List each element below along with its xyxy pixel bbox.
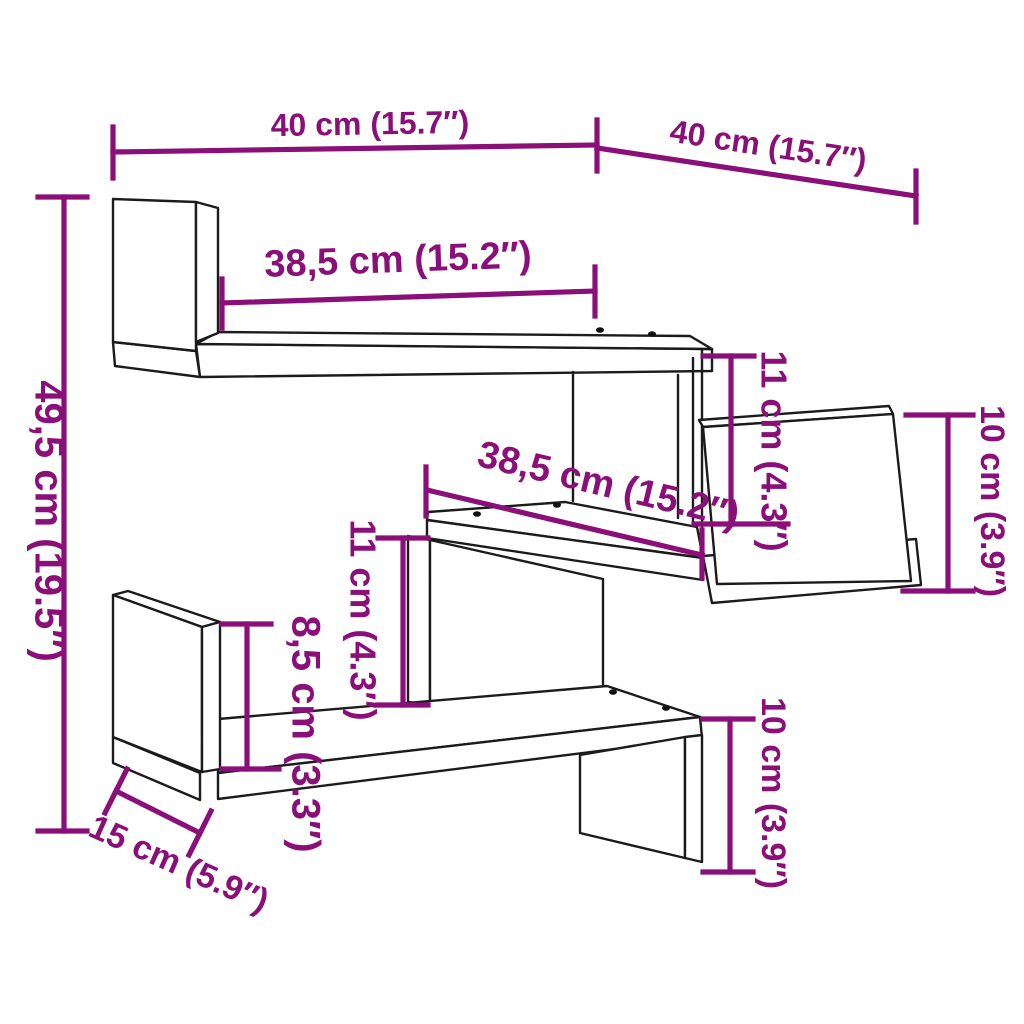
dimension-label: 10 cm (3.9″) xyxy=(754,697,792,889)
dimension-label: 8,5 cm (3.3″) xyxy=(283,615,327,852)
dimension-width-left: 40 cm (15.7″) xyxy=(113,104,597,178)
dimension-label: 11 cm (4.3″) xyxy=(342,519,383,720)
corner-shelf-dimension-diagram: 40 cm (15.7″) 40 cm (15.7″) 38,5 cm (15.… xyxy=(0,0,1024,1024)
dimension-top-shelf-length: 38,5 cm (15.2″) xyxy=(222,234,595,328)
shelf-line-art xyxy=(113,199,921,862)
dimension-label: 49,5 cm (19.5″) xyxy=(26,380,70,662)
dimension-label: 38,5 cm (15.2″) xyxy=(264,234,533,285)
diagram-canvas: 40 cm (15.7″) 40 cm (15.7″) 38,5 cm (15.… xyxy=(0,0,1024,1024)
dimension-total-height: 49,5 cm (19.5″) xyxy=(26,197,87,831)
dimension-label: 40 cm (15.7″) xyxy=(270,104,469,143)
dimension-label: 11 cm (4.3″) xyxy=(753,350,794,551)
dimension-label: 10 cm (3.9″) xyxy=(973,405,1011,597)
dimension-label: 40 cm (15.7″) xyxy=(668,113,870,179)
dimension-width-right: 40 cm (15.7″) xyxy=(597,113,916,222)
dimension-bottom-panel-height: 10 cm (3.9″) xyxy=(703,697,792,889)
